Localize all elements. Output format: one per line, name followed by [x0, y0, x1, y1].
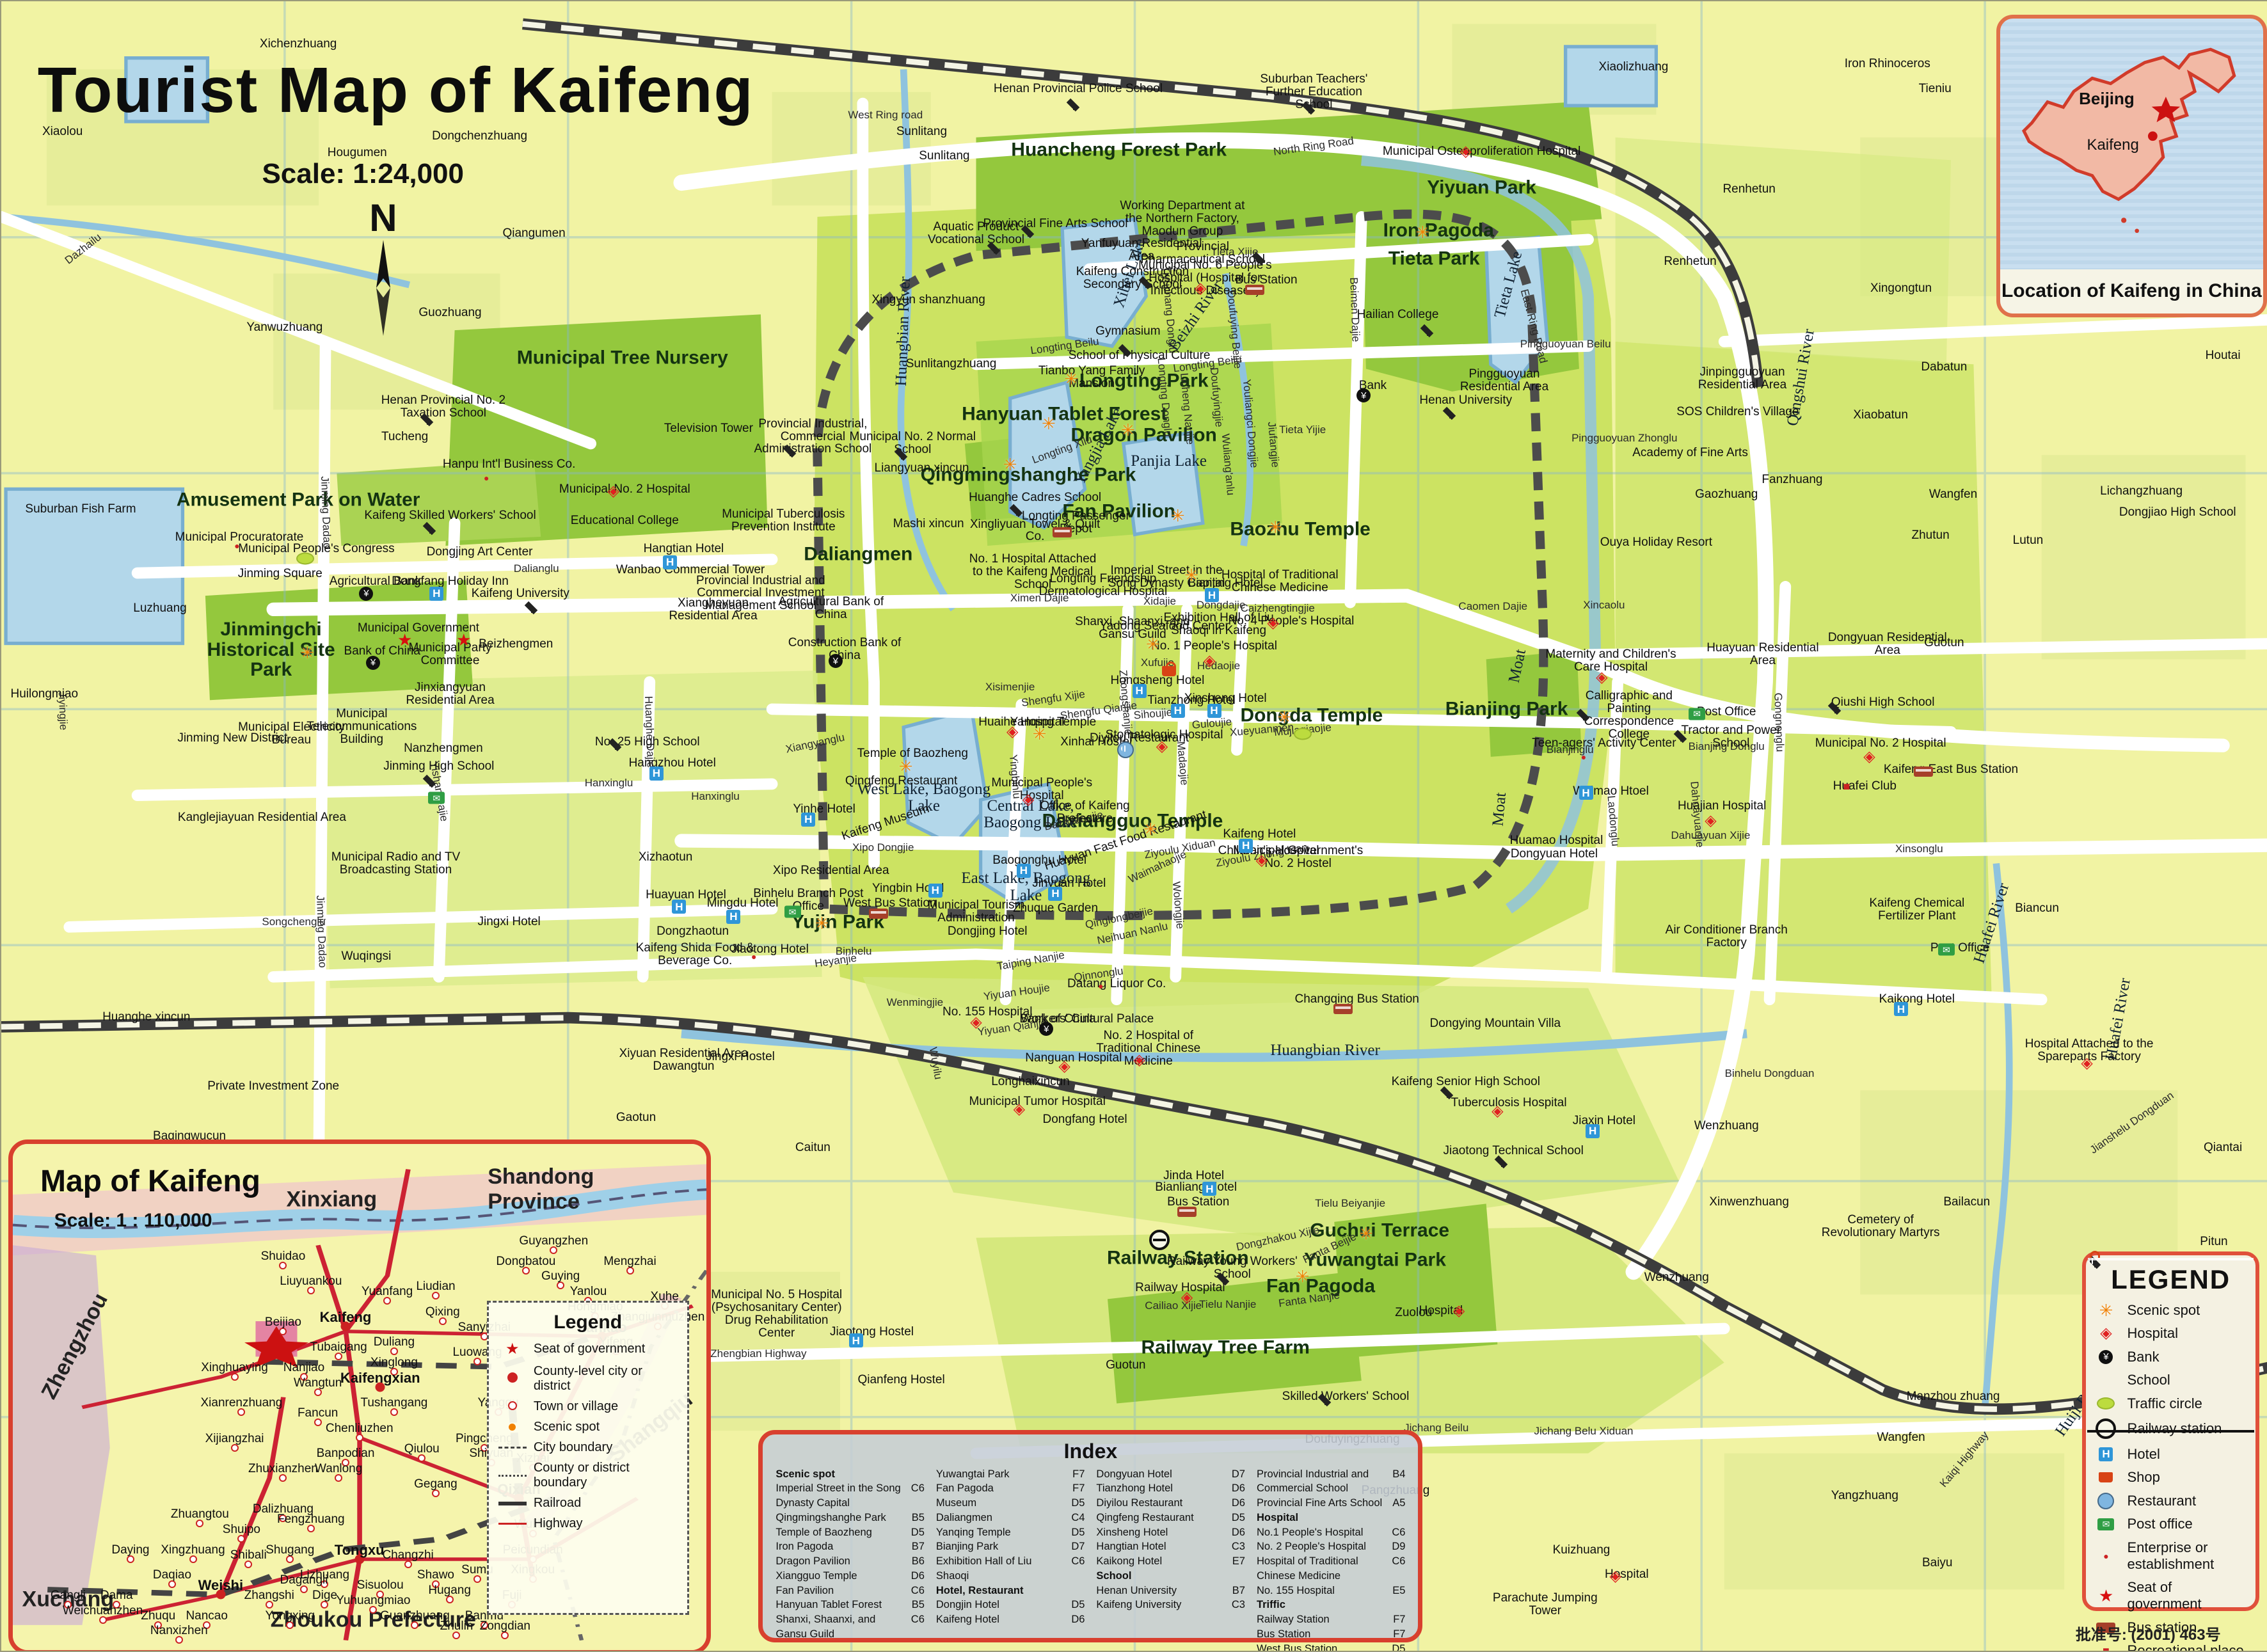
- kaifeng-label: Kaifeng: [2087, 136, 2138, 154]
- index-section-header: Triffic: [1257, 1598, 1406, 1612]
- index-entry: Xinsheng HotelD6: [1096, 1525, 1245, 1540]
- town-label: Tongxu: [335, 1542, 385, 1559]
- town-label: Tubaigang: [310, 1340, 367, 1354]
- index-entry: Dongyuan HotelD7: [1096, 1467, 1245, 1482]
- town-label: Xianrenzhuang: [200, 1396, 282, 1410]
- approval-number: 批准号: (2001) 463号: [2076, 1622, 2221, 1644]
- ent-icon: ●: [1581, 752, 1586, 761]
- region-legend-label: County or district boundary: [534, 1461, 678, 1490]
- north-label: N: [369, 196, 398, 240]
- school-icon: [1300, 101, 1318, 113]
- legend-item: ✳Scenic spot: [2095, 1302, 2246, 1319]
- legend-item-label: Hospital: [2127, 1325, 2177, 1342]
- town-label: Xinglong: [370, 1356, 418, 1370]
- town-label: Fancun: [298, 1406, 338, 1420]
- hotel-icon: H: [1017, 864, 1031, 878]
- town-label: Nanxizhen: [150, 1624, 208, 1638]
- legend-item-label: Seat of government: [2127, 1579, 2246, 1612]
- hotel-icon: H: [1205, 588, 1219, 602]
- index-entry: Hospital of Traditional Chinese Medicine…: [1257, 1554, 1406, 1584]
- north-arrow-icon: [369, 240, 398, 336]
- legend-item-label: Post office: [2127, 1516, 2192, 1532]
- post-icon: ✉: [1938, 944, 1955, 956]
- town-label: Weichuanzhen: [63, 1604, 143, 1618]
- town-label: Xingzhuang: [161, 1543, 225, 1557]
- hospital-icon: ◈: [1022, 792, 1034, 807]
- ent-icon: ●: [2103, 1552, 2108, 1561]
- town-label: Banpodian: [317, 1447, 375, 1461]
- page-title: Tourist Map of Kaifeng: [38, 54, 754, 127]
- hotel-icon: H: [1239, 839, 1253, 853]
- bus-icon: [1333, 1004, 1353, 1014]
- scenic-icon: ✳: [1296, 1268, 1310, 1285]
- index-entry: Iron PagodaB7: [776, 1539, 925, 1554]
- index-entry: No. 155 HospitalE5: [1257, 1584, 1406, 1598]
- hotel-icon: H: [1586, 1124, 1600, 1138]
- hotel-icon: H: [1048, 887, 1062, 901]
- region-legend-label: Railroad: [534, 1496, 581, 1511]
- town-label: Yanlou: [570, 1285, 607, 1299]
- hospital-icon: ◈: [1453, 1303, 1465, 1319]
- scenic-symbol-icon: [498, 1420, 527, 1434]
- school-icon: [523, 601, 541, 612]
- town-label: Yongxing: [266, 1609, 315, 1623]
- hospital-icon: ◈: [1204, 653, 1215, 669]
- region-legend: Legend ★Seat of governmentCounty-level c…: [487, 1301, 689, 1615]
- index-entry: Qingfeng RestaurantD5: [1096, 1511, 1245, 1525]
- hotel-icon: H: [726, 910, 740, 924]
- scenic-icon: ✳: [1416, 224, 1430, 241]
- index-section-header: Scenic spot: [776, 1467, 925, 1482]
- hotel-icon: H: [928, 884, 943, 898]
- bus-icon: [1914, 766, 1933, 777]
- hotel-icon: H: [849, 1333, 863, 1347]
- town-label: Kaifeng: [320, 1309, 372, 1326]
- index-entry: Bus StationF7: [1257, 1627, 1406, 1642]
- town-label: Fengzhuang: [277, 1513, 345, 1527]
- town-label: Guanzhuang: [380, 1609, 450, 1623]
- scenic-icon: ✳: [815, 915, 829, 932]
- scenic-icon: ✳: [1277, 709, 1291, 726]
- legend-item: ●Enterprise or establishment: [2095, 1539, 2246, 1573]
- hotel-icon: H: [649, 766, 664, 781]
- legend-item-label: Shop: [2127, 1469, 2160, 1486]
- index-section-header: School: [1096, 1569, 1245, 1584]
- town-label: Mengzhai: [603, 1255, 656, 1269]
- region-label: Shandong Province: [488, 1164, 633, 1214]
- legend-item-label: Scenic spot: [2127, 1302, 2200, 1319]
- legend-item: ¥Bank: [2095, 1349, 2246, 1365]
- town-label: Yuanfang: [362, 1285, 413, 1299]
- post-icon: ✉: [1689, 708, 1705, 720]
- index-entry: Provincial Industrial and Commercial Sch…: [1257, 1467, 1406, 1497]
- town-label: Zhangshi: [244, 1589, 294, 1603]
- town-label: Shugang: [266, 1543, 314, 1557]
- bank-icon: ¥: [366, 656, 380, 670]
- legend-item: Railway station: [2095, 1418, 2246, 1439]
- school-icon: [1250, 251, 1268, 263]
- scenic-icon: ✳: [2099, 1302, 2113, 1319]
- town-label: Chenliuzhen: [326, 1422, 394, 1436]
- hospital-icon: ◈: [1058, 1059, 1070, 1074]
- hwy-symbol-icon: [498, 1516, 527, 1531]
- index-section-header: Hospital: [1257, 1511, 1406, 1525]
- hotel-icon: H: [1202, 1182, 1216, 1196]
- post-icon: ✉: [784, 906, 801, 918]
- scenic-icon: ✳: [899, 758, 913, 775]
- legend-item-label: Hotel: [2127, 1446, 2160, 1463]
- bus-icon: [1053, 527, 1072, 537]
- scenic-icon: ✳: [300, 644, 314, 661]
- legend-item-label: Traffic circle: [2127, 1395, 2202, 1412]
- hospital-icon: ◈: [1267, 616, 1278, 631]
- hotel-icon: H: [1133, 684, 1147, 698]
- gov-icon: ★: [2099, 1587, 2113, 1604]
- gov-icon: ★: [397, 631, 412, 648]
- region-legend-item: Highway: [498, 1516, 678, 1531]
- region-legend-item: Scenic spot: [498, 1420, 678, 1434]
- legend-item: ★Seat of government: [2095, 1579, 2246, 1612]
- town-label: Duliang: [374, 1335, 415, 1349]
- town-label: Guying: [541, 1269, 580, 1283]
- hospital-icon: ◈: [1596, 670, 1607, 685]
- traffic-icon: [1294, 727, 1312, 740]
- school-icon: [1672, 729, 1690, 741]
- gov-icon: ★: [456, 631, 471, 648]
- school-icon: [1826, 701, 1844, 713]
- region-legend-item: Town or village: [498, 1399, 678, 1414]
- hotel-icon: H: [672, 900, 686, 914]
- region-legend-label: Highway: [534, 1516, 583, 1531]
- school-icon: [1575, 708, 1593, 720]
- hospital-icon: ◈: [1460, 144, 1472, 159]
- index-entry: Dragon PavilionB6: [776, 1554, 925, 1569]
- index-entry: Diyilou RestaurantD6: [1096, 1496, 1245, 1511]
- index-box: Index Scenic spotImperial Street in the …: [758, 1430, 1422, 1643]
- index-entry: Imperial Street in the Song Dynasty Capi…: [776, 1481, 925, 1511]
- hospital-icon: ◈: [1491, 1104, 1503, 1119]
- town-label: Gegang: [414, 1477, 457, 1491]
- index-entry: Railway StationF7: [1257, 1612, 1406, 1627]
- region-legend-item: Railroad: [498, 1496, 678, 1511]
- school-icon: [1316, 1393, 1334, 1404]
- index-entry: Henan UniversityB7: [1096, 1584, 1245, 1598]
- region-legend-label: City boundary: [534, 1440, 612, 1455]
- school-icon: [1019, 225, 1037, 236]
- town-label: Nancao: [186, 1609, 228, 1623]
- hotel-icon: H: [429, 587, 443, 601]
- hospital-icon: ◈: [1256, 853, 1268, 868]
- town-label: Liuyuankou: [280, 1275, 342, 1289]
- town-label: Dama: [100, 1589, 133, 1603]
- compass: N: [369, 196, 398, 339]
- town-label: Shuidao: [261, 1250, 306, 1264]
- town-label: Guyangzhen: [519, 1234, 588, 1248]
- index-entry: Tianzhong HotelD6: [1096, 1481, 1245, 1496]
- bank-icon: ¥: [829, 654, 843, 668]
- school-icon: [781, 444, 799, 456]
- hotel-icon: H: [1894, 1002, 1908, 1016]
- town-label: Dagangli: [280, 1573, 328, 1587]
- region-inset-scale: Scale: 1 : 110,000: [54, 1210, 212, 1232]
- town-label: Shuipo: [223, 1523, 260, 1537]
- rest-icon: [1117, 742, 1134, 758]
- town-label: Liudian: [416, 1280, 455, 1294]
- rest-icon: [2097, 1493, 2114, 1509]
- region-legend-label: Seat of government: [534, 1342, 646, 1356]
- hospital-icon: ◈: [1863, 749, 1875, 765]
- bank-icon: ¥: [359, 587, 373, 601]
- china-locator-inset: Beijing Kaifeng Location of Kaifeng in C…: [1996, 15, 2267, 317]
- index-entry: MuseumD5: [936, 1496, 1085, 1511]
- bus-icon: [1177, 1207, 1197, 1217]
- town-label: Gangli: [51, 1589, 86, 1603]
- traffic-icon: [296, 553, 314, 565]
- index-column: Yuwangtai ParkF7Fan PagodaF7MuseumD5Dali…: [936, 1467, 1085, 1652]
- town-label: Dige: [312, 1589, 337, 1603]
- index-entry: Xiangguo TempleD6: [776, 1569, 925, 1584]
- town-label: Sisuolou: [357, 1578, 404, 1592]
- china-inset-caption: Location of Kaifeng in China: [2000, 269, 2263, 314]
- rec-icon: ■: [2103, 1645, 2110, 1652]
- ent-icon: ●: [751, 952, 756, 961]
- legend-item: Shop: [2095, 1469, 2246, 1486]
- index-entry: Temple of BaozhengD5: [776, 1525, 925, 1540]
- hospital-icon: ◈: [1006, 724, 1018, 740]
- school-icon: [985, 241, 1003, 253]
- town-label: Qixing: [426, 1305, 460, 1319]
- region-legend-label: County-level city or district: [534, 1364, 678, 1394]
- region-legend-title: Legend: [498, 1312, 678, 1333]
- town-label: Yuhuangmiao: [336, 1594, 410, 1608]
- town-label: Dongbatou: [496, 1255, 555, 1269]
- index-entry: DaliangmenC4: [936, 1511, 1085, 1525]
- legend-item: ✉Post office: [2095, 1516, 2246, 1532]
- region-legend-label: Town or village: [534, 1399, 618, 1414]
- town-label: Wangtun: [294, 1376, 342, 1390]
- school-icon: [1441, 406, 1459, 418]
- map-scale: Scale: 1:24,000: [262, 158, 464, 190]
- ent-icon: ●: [484, 473, 489, 482]
- index-entry: Fan PagodaF7: [936, 1481, 1085, 1496]
- hospital-icon: ◈: [970, 1015, 982, 1030]
- legend-item: HHotel: [2095, 1446, 2246, 1463]
- shop-icon: [2099, 1472, 2113, 1482]
- school-icon: [893, 447, 911, 459]
- region-legend-item: County or district boundary: [498, 1461, 678, 1490]
- index-entry: Hangtian HotelC3: [1096, 1539, 1245, 1554]
- ent-icon: ●: [234, 541, 239, 550]
- legend-item-label: School: [2127, 1372, 2170, 1388]
- index-entry: Yanqing TempleD5: [936, 1525, 1085, 1540]
- bank-icon: ¥: [1356, 388, 1371, 402]
- school-icon: [1438, 1086, 1456, 1097]
- school-icon: [1493, 1155, 1511, 1166]
- town-label: Daying: [111, 1543, 149, 1557]
- town-label: Kaifengxian: [340, 1370, 420, 1386]
- hotel-icon: H: [1579, 786, 1593, 800]
- town-label: Changzhi: [382, 1548, 433, 1562]
- post-icon: ✉: [2097, 1518, 2114, 1530]
- region-legend-item: County-level city or district: [498, 1364, 678, 1394]
- scenic-icon: ✳: [1064, 370, 1078, 387]
- town-label: Zhuxianzhen: [248, 1462, 318, 1476]
- legend-item-label: Bank: [2127, 1349, 2159, 1365]
- tourist-map-page: Huancheng Forest ParkYiyuan ParkIron Pag…: [0, 0, 2267, 1652]
- scenic-icon: ✳: [1359, 1225, 1373, 1242]
- index-entry: Kaifeng UniversityC3: [1096, 1598, 1245, 1612]
- town-symbol-icon: [498, 1399, 527, 1414]
- scenic-icon: ✳: [1042, 415, 1056, 432]
- region-label: Xinxiang: [286, 1187, 377, 1212]
- hotel-icon: H: [1207, 704, 1221, 718]
- kaifeng-region-inset: Map of Kaifeng Scale: 1 : 110,000 Xinxia…: [8, 1140, 711, 1652]
- index-entry: Exhibition Hall of Liu ShaoqiC6: [936, 1554, 1085, 1584]
- index-section-header: Hotel, Restaurant: [936, 1584, 1085, 1598]
- hospital-icon: ◈: [2081, 1056, 2092, 1071]
- school-icon: [421, 774, 439, 786]
- scenic-icon: ✳: [1146, 636, 1160, 653]
- town-label: Tushangang: [360, 1396, 427, 1410]
- legend-item-label: Enterprise or establishment: [2127, 1539, 2246, 1573]
- school-icon: [1137, 276, 1155, 287]
- index-entry: West Bus StationD5: [1257, 1642, 1406, 1652]
- scenic-icon: ✳: [1184, 567, 1198, 584]
- star-symbol-icon: ★: [498, 1340, 527, 1358]
- town-label: Zongdian: [480, 1619, 530, 1633]
- hospital-icon: ◈: [1156, 739, 1168, 754]
- index-entry: Yuwangtai ParkF7: [936, 1467, 1085, 1482]
- index-column: Provincial Industrial and Commercial Sch…: [1257, 1467, 1406, 1652]
- town-label: Hugang: [428, 1584, 471, 1598]
- rail-symbol-icon: [498, 1496, 527, 1511]
- index-entry: No.1 People's HospitalC6: [1257, 1525, 1406, 1540]
- town-label: Daqiao: [153, 1568, 191, 1582]
- index-entry: No. 2 People's HospitalD9: [1257, 1539, 1406, 1554]
- hospital-icon: ◈: [1181, 1290, 1193, 1305]
- town-label: Shibali: [230, 1548, 267, 1562]
- bank-icon: ¥: [2099, 1350, 2113, 1364]
- region-legend-item: ★Seat of government: [498, 1340, 678, 1358]
- index-column: Scenic spotImperial Street in the Song D…: [776, 1467, 925, 1652]
- city-symbol-icon: [498, 1372, 527, 1386]
- index-entry: Dongjin HotelD5: [936, 1598, 1085, 1612]
- school-icon: [2097, 1374, 2115, 1386]
- index-entry: Shanxi, Shaanxi, and Gansu GuildC6: [776, 1612, 925, 1642]
- hospital-icon: ◈: [1014, 1102, 1025, 1117]
- town-label: Nanjiao: [283, 1361, 324, 1375]
- region-legend-label: Scenic spot: [534, 1420, 600, 1434]
- index-entry: Bianjing ParkD7: [936, 1539, 1085, 1554]
- town-label: Zhulin: [440, 1619, 473, 1633]
- rec-icon: ■: [1843, 781, 1850, 792]
- cityb-symbol-icon: [498, 1440, 527, 1455]
- legend-box: LEGEND ✳Scenic spot◈Hospital¥BankSchoolT…: [2082, 1251, 2259, 1611]
- legend-title: LEGEND: [2095, 1264, 2246, 1295]
- index-entry: Qingmingshanghe ParkB5: [776, 1511, 925, 1525]
- scenic-icon: ✳: [1268, 519, 1282, 536]
- legend-item-label: Railway station: [2127, 1420, 2222, 1437]
- town-label: Xinghuaying: [201, 1361, 268, 1375]
- traffic-icon: [2097, 1397, 2115, 1410]
- legend-item: School: [2095, 1372, 2246, 1388]
- hospital-icon: ◈: [1609, 1569, 1621, 1584]
- town-label: Shawo: [417, 1568, 454, 1582]
- town-label: Zhuangtou: [171, 1507, 229, 1521]
- index-title: Index: [776, 1440, 1405, 1463]
- countyb-symbol-icon: [498, 1468, 527, 1483]
- school-icon: [418, 413, 436, 424]
- hospital-icon: ◈: [1195, 281, 1206, 296]
- bus-icon: [869, 909, 888, 919]
- school-icon: [1419, 324, 1436, 335]
- hotel-icon: H: [1171, 704, 1185, 718]
- index-entry: Kaifeng HotelD6: [936, 1612, 1085, 1627]
- railway-icon: [1149, 1230, 1170, 1250]
- index-entry: Provincial Fine Arts SchoolA5: [1257, 1496, 1406, 1511]
- bus-icon: [1245, 285, 1264, 295]
- town-label: Wanlong: [315, 1462, 362, 1476]
- school-icon: [421, 521, 439, 533]
- legend-item-label: Restaurant: [2127, 1493, 2196, 1509]
- school-icon: [1117, 344, 1134, 355]
- town-label: Xijiangzhai: [205, 1432, 264, 1446]
- town-label: Weishi: [198, 1577, 244, 1594]
- legend-item: Restaurant: [2095, 1493, 2246, 1509]
- hospital-icon: ◈: [607, 484, 619, 499]
- beijing-label: Beijing: [2079, 89, 2135, 109]
- shop-icon: [1162, 666, 1176, 676]
- school-icon: [1065, 98, 1083, 109]
- hotel-icon: H: [663, 555, 677, 569]
- town-label: Qiulou: [404, 1442, 440, 1456]
- scenic-icon: ✳: [1121, 422, 1135, 438]
- region-legend-item: City boundary: [498, 1440, 678, 1455]
- index-entry: Kaikong HotelE7: [1096, 1554, 1245, 1569]
- school-icon: [1214, 1272, 1232, 1283]
- railway-icon: [2096, 1418, 2116, 1439]
- town-label: Beijiao: [265, 1315, 301, 1330]
- hotel-icon: H: [2099, 1447, 2113, 1461]
- legend-item: ◈Hospital: [2095, 1325, 2246, 1342]
- hospital-icon: ◈: [1705, 813, 1716, 829]
- scenic-icon: ✳: [1171, 507, 1185, 524]
- school-icon: [607, 738, 624, 749]
- bank-icon: ¥: [1039, 1022, 1053, 1036]
- school-icon: [1008, 504, 1026, 515]
- hospital-icon: ◈: [2100, 1326, 2112, 1341]
- town-label: Zhuqu: [141, 1609, 175, 1623]
- scenic-icon: ✳: [1003, 456, 1017, 473]
- scenic-icon: ✳: [1033, 726, 1047, 742]
- index-entry: Hanyuan Tablet ForestB5: [776, 1598, 925, 1612]
- post-icon: ✉: [428, 792, 445, 804]
- index-column: Dongyuan HotelD7Tianzhong HotelD6Diyilou…: [1096, 1467, 1245, 1652]
- ent-icon: ●: [1098, 981, 1103, 990]
- legend-item: Traffic circle: [2095, 1395, 2246, 1412]
- region-inset-title: Map of Kaifeng: [40, 1164, 260, 1199]
- scenic-icon: ✳: [1143, 821, 1157, 838]
- index-entry: Fan PavilionC6: [776, 1584, 925, 1598]
- hotel-icon: H: [801, 813, 815, 827]
- hospital-icon: ◈: [1133, 1052, 1145, 1068]
